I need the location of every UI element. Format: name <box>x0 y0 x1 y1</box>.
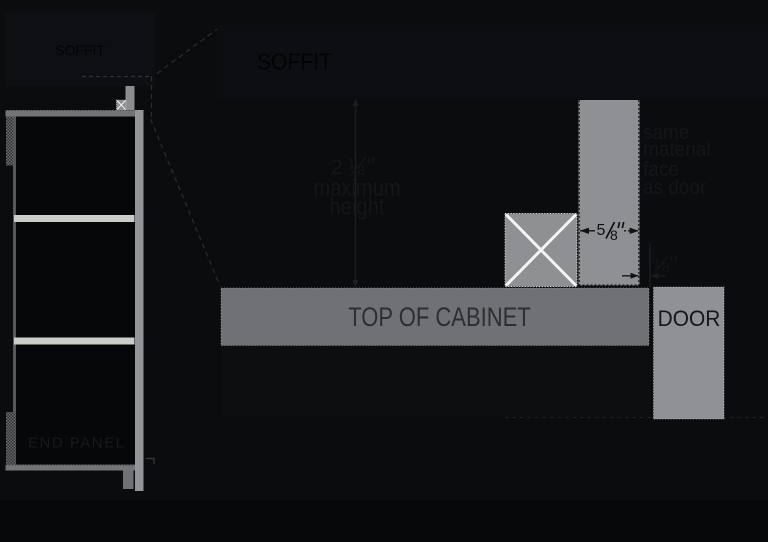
svg-text:5: 5 <box>597 222 606 239</box>
svg-text:8: 8 <box>610 227 618 243</box>
svg-text:END PANEL: END PANEL <box>28 435 125 452</box>
svg-text:height: height <box>330 193 385 220</box>
svg-text:DOOR: DOOR <box>658 307 721 332</box>
svg-text:8: 8 <box>662 259 670 275</box>
svg-text:SOFFIT: SOFFIT <box>55 42 105 58</box>
svg-text:TOP OF CABINET: TOP OF CABINET <box>348 303 530 333</box>
svg-text:as door: as door <box>643 177 707 200</box>
svg-text:SOFFIT: SOFFIT <box>257 49 332 75</box>
